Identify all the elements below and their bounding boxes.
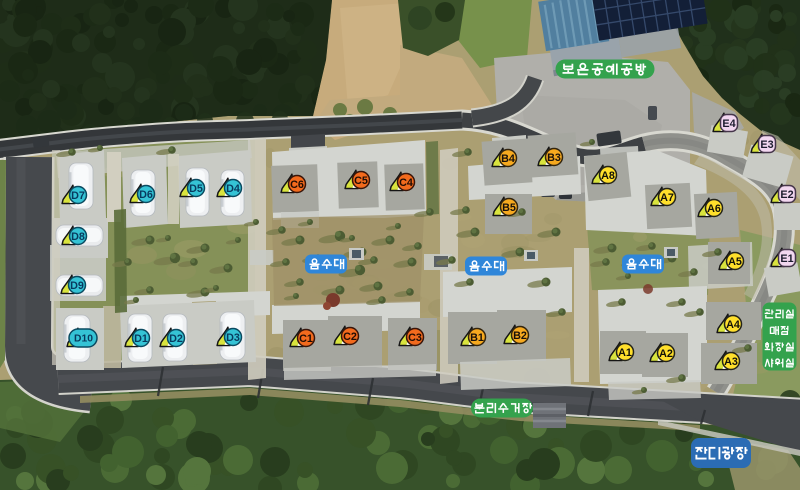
svg-text:C4: C4: [399, 177, 413, 189]
svg-text:B1: B1: [470, 332, 484, 344]
svg-text:A5: A5: [728, 256, 742, 268]
svg-text:D4: D4: [226, 183, 240, 195]
svg-text:D6: D6: [139, 189, 153, 201]
svg-text:D2: D2: [169, 333, 183, 345]
svg-text:A2: A2: [659, 348, 673, 360]
svg-text:E3: E3: [760, 139, 773, 151]
svg-text:B2: B2: [513, 330, 527, 342]
svg-text:C5: C5: [354, 175, 368, 187]
svg-text:A8: A8: [601, 170, 615, 182]
svg-text:B4: B4: [501, 153, 515, 165]
svg-text:B3: B3: [547, 152, 561, 164]
svg-text:D3: D3: [226, 332, 240, 344]
svg-text:E1: E1: [780, 253, 793, 265]
svg-text:C3: C3: [408, 332, 422, 344]
svg-text:D1: D1: [134, 333, 148, 345]
svg-text:D8: D8: [71, 231, 85, 243]
svg-text:D10: D10: [74, 334, 93, 345]
svg-text:B5: B5: [502, 202, 516, 214]
svg-text:C6: C6: [290, 179, 304, 191]
svg-text:C1: C1: [299, 333, 313, 345]
svg-text:E4: E4: [722, 118, 735, 130]
svg-text:E2: E2: [780, 189, 793, 201]
svg-text:A6: A6: [707, 203, 721, 215]
svg-text:D5: D5: [189, 183, 203, 195]
svg-text:A7: A7: [660, 192, 674, 204]
svg-text:A3: A3: [724, 356, 738, 368]
svg-text:C2: C2: [343, 331, 357, 343]
svg-text:D7: D7: [71, 190, 85, 202]
svg-text:D9: D9: [70, 280, 84, 292]
svg-text:A4: A4: [726, 319, 740, 331]
svg-text:A1: A1: [618, 347, 632, 359]
